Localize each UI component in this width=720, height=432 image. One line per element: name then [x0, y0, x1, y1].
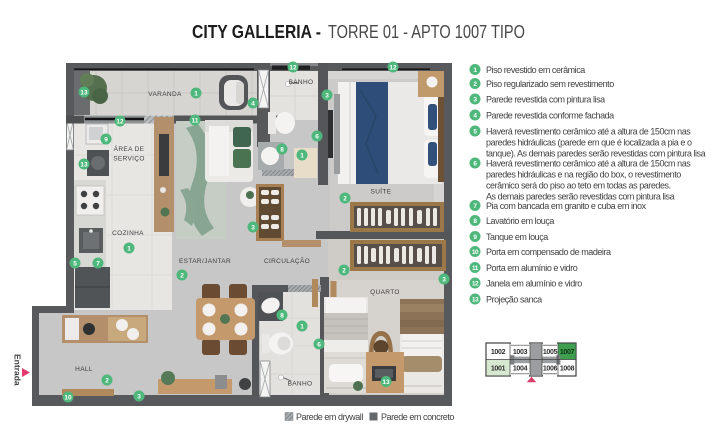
svg-text:2: 2	[343, 195, 347, 202]
svg-text:12: 12	[289, 64, 297, 71]
svg-text:1: 1	[300, 152, 304, 159]
svg-text:1004: 1004	[513, 366, 528, 373]
svg-text:13: 13	[382, 379, 390, 386]
svg-text:12: 12	[116, 118, 124, 125]
svg-text:cerâmico será do piso ao teto: cerâmico será do piso ao teto em todas a…	[486, 181, 671, 191]
svg-text:13: 13	[472, 296, 479, 303]
svg-text:Parede em drywall: Parede em drywall	[296, 412, 363, 422]
svg-text:paredes hidráulicas (parede em: paredes hidráulicas (parede em que é loc…	[486, 138, 692, 148]
svg-text:HALL: HALL	[75, 366, 93, 373]
svg-text:10: 10	[64, 394, 72, 401]
svg-text:1: 1	[127, 245, 131, 252]
svg-text:Tanque em louça: Tanque em louça	[486, 232, 548, 242]
svg-text:CIRCULAÇÃO: CIRCULAÇÃO	[264, 256, 310, 265]
svg-text:Haverá revestimento cerâmico a: Haverá revestimento cerâmico até a altur…	[486, 127, 691, 137]
svg-text:1006: 1006	[543, 366, 558, 373]
svg-text:ESTAR/JANTAR: ESTAR/JANTAR	[179, 258, 231, 265]
svg-text:1: 1	[194, 90, 198, 97]
svg-text:SUÍTE: SUÍTE	[371, 187, 392, 196]
svg-text:1: 1	[300, 323, 304, 330]
svg-text:7: 7	[96, 260, 100, 267]
svg-text:Piso revestido em cerâmica: Piso revestido em cerâmica	[486, 65, 585, 75]
svg-text:SERVIÇO: SERVIÇO	[113, 156, 145, 163]
svg-text:3: 3	[137, 393, 141, 400]
svg-text:8: 8	[280, 146, 284, 153]
svg-text:BANHO: BANHO	[289, 79, 314, 86]
svg-text:tanque). As demais paredes ser: tanque). As demais paredes serão revesti…	[486, 149, 706, 159]
svg-text:6: 6	[317, 341, 321, 348]
svg-text:1008: 1008	[560, 366, 575, 373]
svg-text:1001: 1001	[491, 366, 506, 373]
svg-text:11: 11	[472, 265, 479, 272]
svg-text:2: 2	[342, 267, 346, 274]
svg-text:COZINHA: COZINHA	[112, 230, 144, 237]
svg-text:VARANDA: VARANDA	[148, 91, 182, 98]
svg-text:1003: 1003	[513, 349, 528, 356]
svg-text:QUARTO: QUARTO	[370, 289, 400, 296]
svg-text:TORRE 01 - APTO 1007 TIPO: TORRE 01 - APTO 1007 TIPO	[328, 21, 525, 42]
svg-text:ÁREA DE: ÁREA DE	[114, 144, 145, 153]
svg-text:Piso regularizado sem revestim: Piso regularizado sem revestimento	[486, 79, 614, 89]
svg-text:Janela em alumínio e vidro: Janela em alumínio e vidro	[486, 279, 582, 289]
svg-text:BANHO: BANHO	[288, 381, 313, 388]
svg-text:12: 12	[472, 280, 479, 287]
svg-text:2: 2	[105, 377, 109, 384]
svg-text:5: 5	[73, 260, 77, 267]
svg-text:Parede revestida conforme fach: Parede revestida conforme fachada	[486, 111, 614, 121]
svg-text:Porta em compensado de madeira: Porta em compensado de madeira	[486, 247, 611, 257]
svg-text:3: 3	[251, 224, 255, 231]
svg-text:11: 11	[192, 117, 199, 124]
svg-text:13: 13	[80, 161, 88, 168]
svg-text:6: 6	[315, 133, 319, 140]
svg-text:2: 2	[180, 272, 184, 279]
svg-text:1002: 1002	[491, 349, 506, 356]
svg-text:4: 4	[251, 100, 255, 107]
svg-text:12: 12	[389, 64, 397, 71]
svg-text:3: 3	[325, 92, 329, 99]
svg-text:Haverá revestimento cerâmico a: Haverá revestimento cerâmico até a altur…	[486, 159, 691, 169]
svg-text:10: 10	[472, 249, 479, 256]
svg-text:13: 13	[80, 89, 88, 96]
svg-text:1007: 1007	[560, 349, 575, 356]
svg-text:Parede revestida com pintura l: Parede revestida com pintura lisa	[486, 95, 605, 105]
svg-text:8: 8	[280, 312, 284, 319]
svg-text:3: 3	[442, 276, 446, 283]
svg-text:Lavatório em louça: Lavatório em louça	[486, 216, 554, 226]
svg-text:As demais paredes serão revest: As demais paredes serão revestidas com p…	[486, 192, 675, 202]
svg-text:Porta em alumínio e vidro: Porta em alumínio e vidro	[486, 263, 578, 273]
svg-text:Pia com bancada em granito e c: Pia com bancada em granito e cuba em ino…	[486, 201, 647, 211]
svg-text:Parede em concreto: Parede em concreto	[381, 412, 454, 422]
svg-text:Entrada: Entrada	[13, 354, 23, 386]
svg-text:CITY GALLERIA -: CITY GALLERIA -	[192, 21, 321, 42]
svg-text:9: 9	[104, 136, 108, 143]
svg-text:1005: 1005	[543, 349, 558, 356]
svg-text:Projeção sanca: Projeção sanca	[486, 295, 542, 305]
svg-text:paredes hidráulicas e na regiã: paredes hidráulicas e na região do box, …	[486, 170, 681, 180]
